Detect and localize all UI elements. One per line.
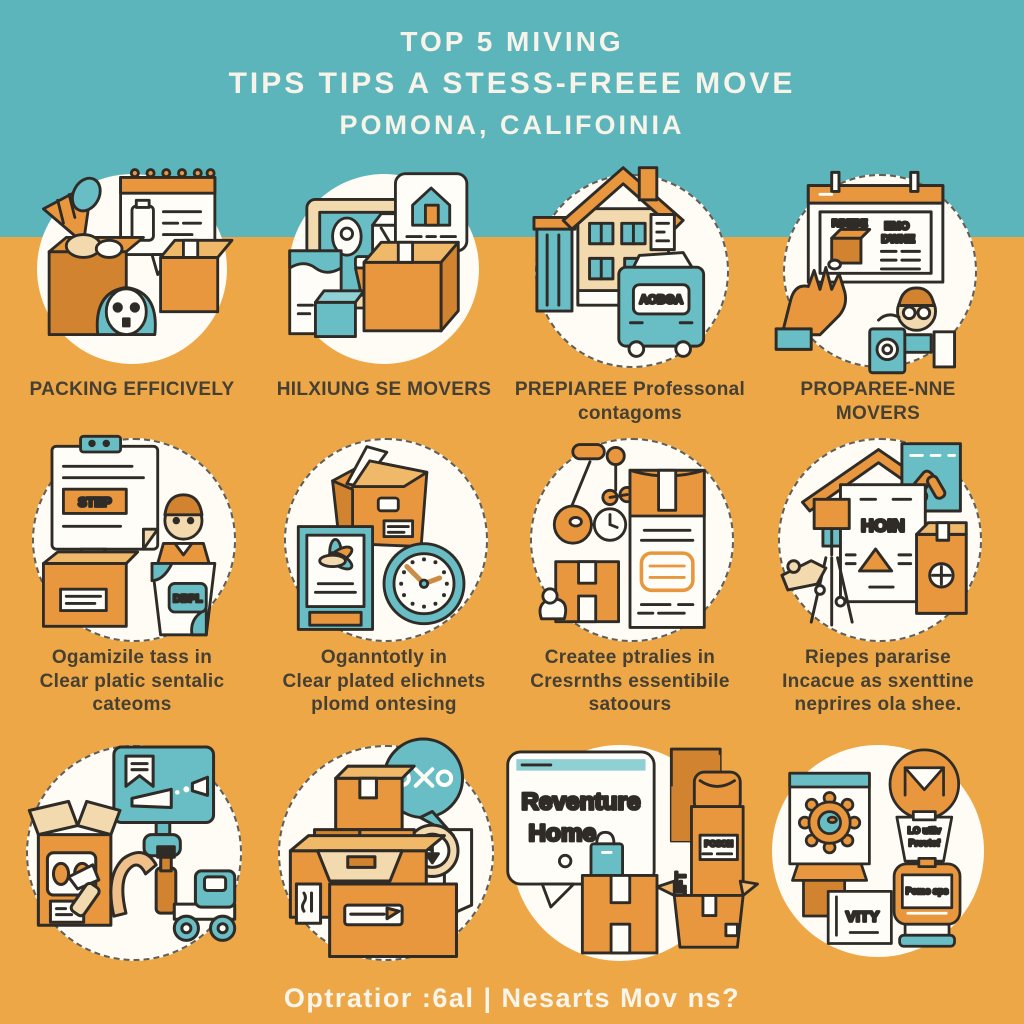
cup-line-1: LO utliv (908, 826, 941, 836)
calendar-hand-person-icon: RBEBE EMO DWNE (776, 168, 981, 383)
tile-caption: Riepes pararise Incacue as sxenttine nep… (758, 646, 998, 717)
tile-prepare-professional: AOBGA PREPIAREE Professonal contagoms (510, 170, 750, 460)
tile-create-essentials: Createe ptralies in Cresrnths essentibil… (510, 438, 750, 728)
award-gear-icon: LO utliv Provtof Pomo sps VITY (776, 743, 982, 949)
title-line-3: POMONA, CALIFOINIA (0, 110, 1024, 141)
cup-line-2: Provtof (909, 838, 940, 848)
poster-title: TOP 5 MIVING TIPS TIPS A STESS-FREEE MOV… (0, 26, 1024, 141)
tile-caption: PREPIAREE Professonal contagoms (510, 378, 750, 425)
step-label: STEP (78, 494, 112, 509)
tile-prepare-supplies: HOIN Riepes pararise Incacue as sxenttin… (758, 438, 998, 728)
screen-box-house-icon (284, 168, 484, 378)
vity-label: VITY (846, 909, 880, 926)
card-title-label: RBEBE (832, 219, 868, 230)
poson-label: POSON (705, 840, 734, 849)
tile-hilxiung-se-movers: HILXIUNG SE MOVERS (264, 170, 504, 460)
truck-label: AOBGA (639, 294, 683, 307)
tile-packing-efficively: PACKING EFFICIVELY (12, 170, 252, 460)
tile-caption: Ogamizile tass in Clear platic sentalic … (12, 646, 252, 717)
title-line-1: TOP 5 MIVING (0, 26, 1024, 58)
diagram-box-document-icon (530, 436, 730, 646)
tile-caption: Createe ptralies in Cresrnths essentibil… (510, 646, 750, 717)
tile-propare-nne-movers: RBEBE EMO DWNE (758, 170, 998, 460)
bubble-line-1: Reventure (521, 788, 640, 815)
open-box-card-clock-icon (284, 438, 484, 648)
bag-label: DBPL (173, 593, 203, 605)
house-sign-lamp-icon: HOIN (776, 432, 981, 647)
footer-text: Optratior :6al | Nesarts Mov ns? (0, 983, 1024, 1014)
tile-caption: PACKING EFFICIVELY (12, 378, 252, 402)
stand-label: Pomo sps (906, 886, 949, 896)
infographic-poster: TOP 5 MIVING TIPS TIPS A STESS-FREEE MOV… (0, 0, 1024, 1024)
bubble-line-2: Home (528, 820, 596, 847)
tile-caption: HILXIUNG SE MOVERS (264, 378, 504, 402)
note2-label: DWNE (881, 234, 914, 246)
tile-caption: Oganntotly in Clear plated elichnets plo… (264, 646, 504, 717)
doc-label: HOIN (861, 515, 905, 535)
tile-organize-tasks: STEP DBPL Ogamizile tas (12, 438, 252, 728)
boxes-no-bubble-icon (278, 739, 490, 961)
tile-caption: PROPAREE-NNE MOVERS (758, 378, 998, 425)
reventure-home-bubble-icon: Reventure Home LIFT POSON (502, 743, 746, 959)
tile-organize-labels: Oganntotly in Clear plated elichnets plo… (264, 438, 504, 728)
house-moving-truck-icon: AOBGA (528, 156, 733, 371)
unpacking-monitor-cart-icon (26, 741, 238, 963)
title-line-2: TIPS TIPS A STESS-FREEE MOVE (0, 67, 1024, 101)
note1-label: EMO (884, 220, 909, 232)
clipboard-person-bag-icon: STEP DBPL (32, 432, 232, 642)
packed-boxes-calendar-icon (32, 166, 232, 376)
